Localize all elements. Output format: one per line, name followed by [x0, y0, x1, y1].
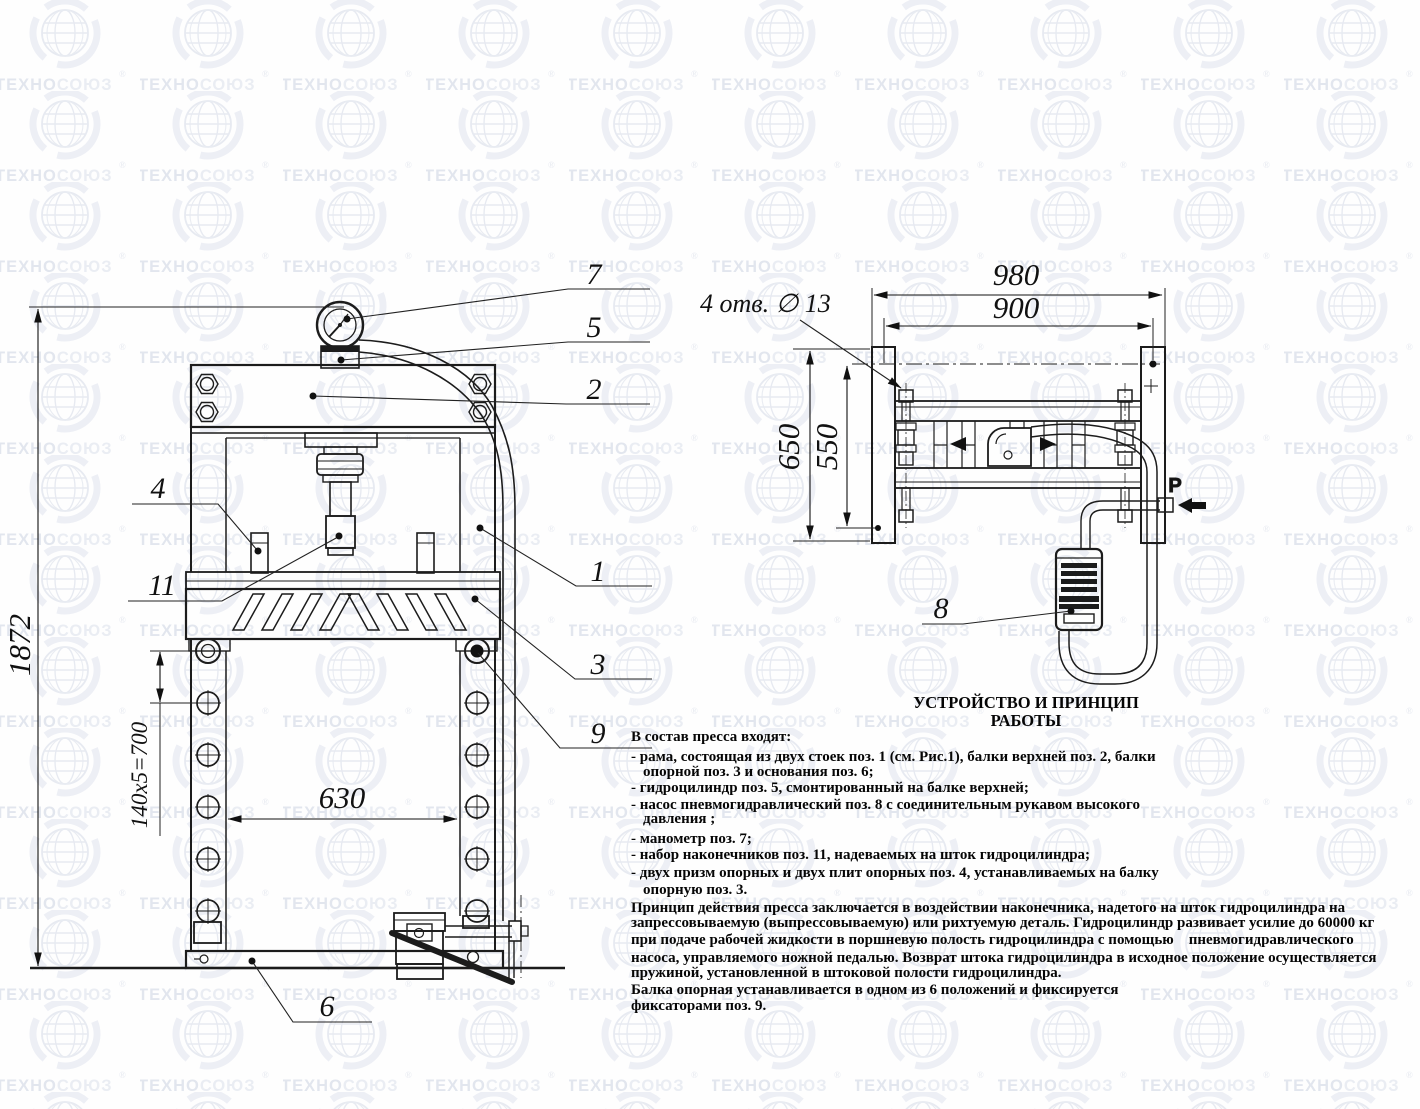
callout-base: 6 — [320, 990, 335, 1023]
dim-inner-depth-label: 550 — [809, 423, 844, 470]
dim-mount-span-label: 900 — [993, 290, 1040, 325]
description-line: при подаче рабочей жидкости в поршневую … — [631, 933, 1354, 948]
description-title: УСТРОЙСТВО И ПРИНЦИП РАБОТЫ — [880, 694, 1172, 730]
dim-overall-depth-label: 650 — [771, 423, 806, 470]
description-line: - рама, состоящая из двух стоек поз. 1 (… — [631, 750, 1156, 765]
description-line: давления ; — [643, 812, 715, 827]
drawing-page: ТЕХНОСОЮЗ ® — [0, 0, 1420, 1109]
callout-prism: 4 — [151, 472, 166, 505]
holes-note-label: 4 отв. ∅ 13 — [700, 289, 831, 318]
callout-gauge: 7 — [587, 258, 604, 291]
description-line: - гидроцилиндр поз. 5, смонтированный на… — [631, 781, 1029, 796]
description-line: опорной поз. 3 и основания поз. 6; — [643, 765, 874, 780]
description-line: - набор наконечников поз. 11, надеваемых… — [631, 848, 1090, 863]
callout-upper-beam: 2 — [587, 373, 602, 406]
description-line: Принцип действия пресса заключается в во… — [631, 901, 1345, 916]
description-line: пружиной, установленной в штоковой полос… — [631, 966, 1062, 981]
callout-support-beam: 3 — [590, 648, 606, 681]
description-line: В состав пресса входят: — [631, 730, 791, 745]
description-line: - двух призм опорных и двух плит опорных… — [631, 866, 1159, 881]
description-line: Балка опорная устанавливается в одном из… — [631, 983, 1118, 998]
dim-hole-pitch-label: 140x5=700 — [127, 721, 152, 828]
callout-pump: 8 — [934, 592, 949, 625]
air-inlet-label: P — [1168, 475, 1181, 497]
description-line: опорную поз. 3. — [643, 883, 747, 898]
dim-overall-height-label: 1872 — [2, 614, 37, 676]
dim-table-width-label: 630 — [319, 780, 366, 815]
description-line: запрессовываемую (выпрессовываемую) или … — [631, 916, 1374, 931]
description-line: фиксаторами поз. 9. — [631, 999, 766, 1014]
description-line: насоса, управляемого ножной педалью. Воз… — [631, 951, 1377, 966]
callout-fixator: 9 — [591, 717, 606, 750]
dim-overall-width-label: 980 — [993, 257, 1040, 292]
description-line: - манометр поз. 7; — [631, 832, 752, 847]
callout-cylinder: 5 — [587, 311, 602, 344]
pressure-gauge — [317, 302, 363, 348]
callout-frame: 1 — [591, 555, 606, 588]
callout-tip-set: 11 — [148, 569, 176, 602]
